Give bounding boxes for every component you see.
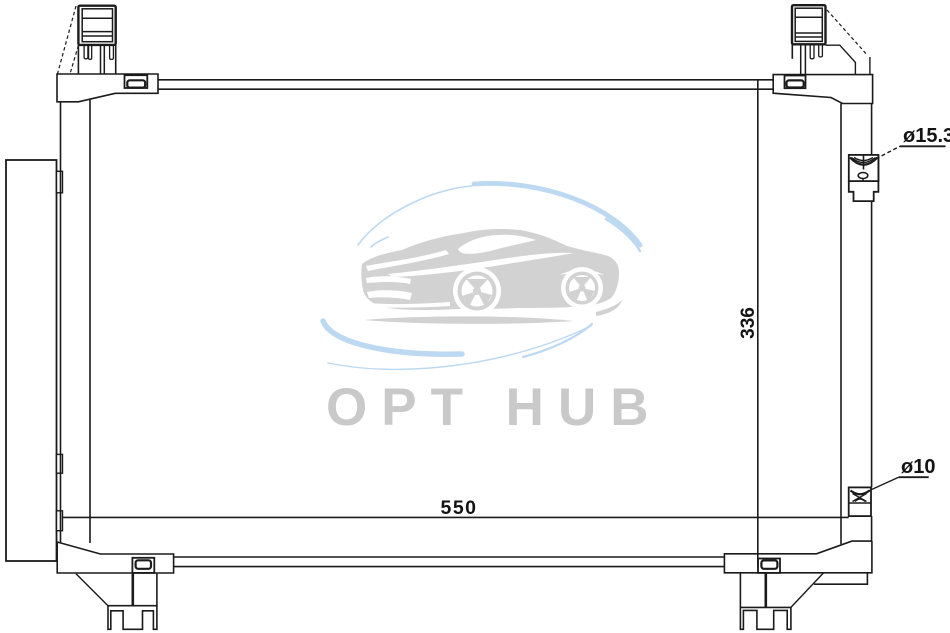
- svg-text:336: 336: [738, 307, 759, 339]
- svg-text:550: 550: [440, 497, 477, 519]
- svg-text:OPT HUB: OPT HUB: [326, 378, 663, 437]
- svg-text:ø15.3: ø15.3: [903, 125, 950, 147]
- svg-text:ø10: ø10: [901, 456, 935, 478]
